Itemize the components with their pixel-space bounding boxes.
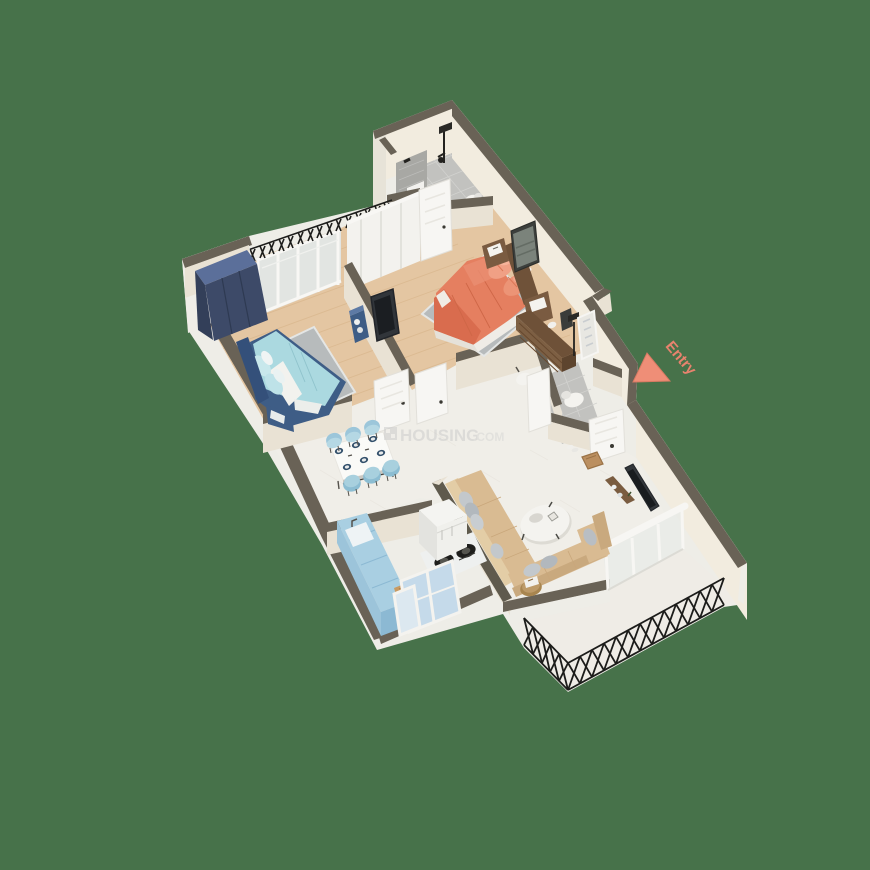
svg-text:.COM: .COM xyxy=(473,430,504,444)
svg-text:HOUSING: HOUSING xyxy=(400,426,479,445)
